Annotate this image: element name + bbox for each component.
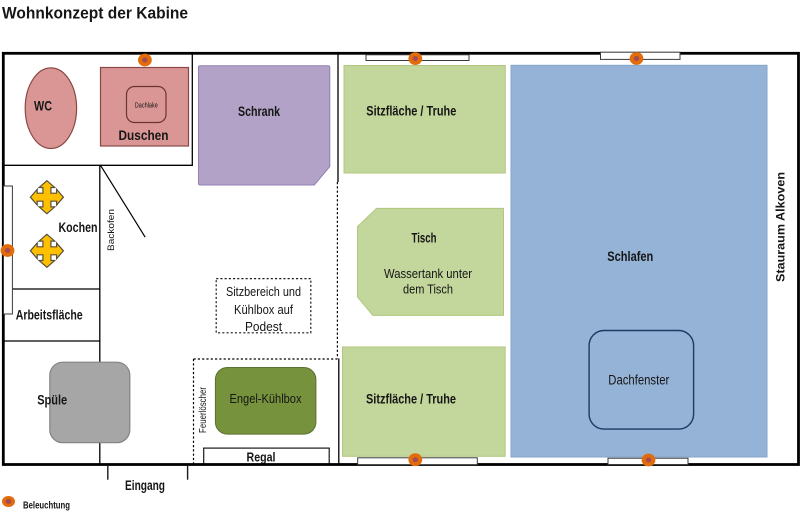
svg-text:Sitzfläche / Truhe: Sitzfläche / Truhe bbox=[366, 392, 456, 407]
svg-text:Wassertank unter: Wassertank unter bbox=[384, 266, 473, 281]
svg-text:Engel-Kühlbox: Engel-Kühlbox bbox=[230, 392, 303, 406]
svg-text:Schlafen: Schlafen bbox=[607, 249, 653, 264]
svg-text:Wohnkonzept der Kabine: Wohnkonzept der Kabine bbox=[2, 4, 188, 23]
svg-text:dem Tisch: dem Tisch bbox=[403, 282, 453, 297]
svg-text:Tisch: Tisch bbox=[412, 231, 437, 246]
svg-text:Stauraum Alkoven: Stauraum Alkoven bbox=[776, 172, 788, 282]
svg-text:Podest: Podest bbox=[245, 320, 282, 334]
svg-text:Eingang: Eingang bbox=[125, 478, 165, 493]
svg-text:Arbeitsfläche: Arbeitsfläche bbox=[16, 308, 83, 323]
svg-text:Sitzbereich und: Sitzbereich und bbox=[226, 285, 301, 299]
svg-text:Beleuchtung: Beleuchtung bbox=[23, 500, 70, 512]
svg-text:Schrank: Schrank bbox=[238, 103, 280, 119]
svg-text:Kochen: Kochen bbox=[59, 219, 98, 235]
svg-text:Spüle: Spüle bbox=[37, 392, 67, 408]
svg-text:Kühlbox auf: Kühlbox auf bbox=[234, 303, 293, 317]
svg-text:Backofen: Backofen bbox=[106, 209, 117, 251]
svg-text:Dachlake: Dachlake bbox=[135, 103, 158, 110]
svg-text:WC: WC bbox=[34, 98, 52, 114]
svg-text:Dachfenster: Dachfenster bbox=[608, 373, 669, 388]
svg-text:Regal: Regal bbox=[247, 451, 276, 465]
svg-text:Feuerlöscher: Feuerlöscher bbox=[198, 386, 209, 433]
svg-text:Sitzfläche / Truhe: Sitzfläche / Truhe bbox=[366, 104, 456, 119]
svg-text:Duschen: Duschen bbox=[119, 128, 169, 143]
